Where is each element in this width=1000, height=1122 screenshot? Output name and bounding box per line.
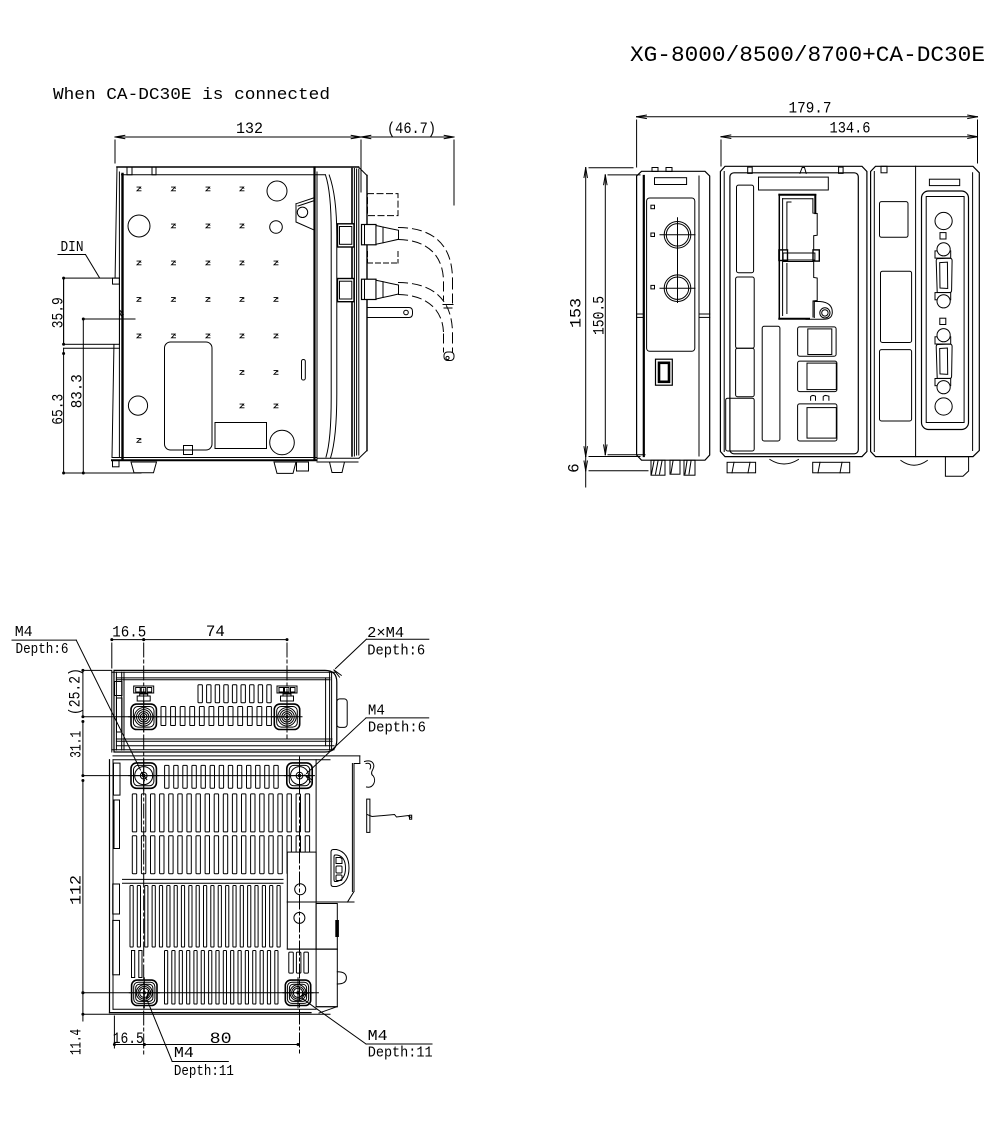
svg-text:74: 74 xyxy=(206,623,225,641)
svg-text:When CA-DC30E is connected: When CA-DC30E is connected xyxy=(53,86,330,105)
svg-text:16.5: 16.5 xyxy=(112,624,146,642)
svg-text:150.5: 150.5 xyxy=(591,296,609,335)
svg-text:179.7: 179.7 xyxy=(789,100,832,118)
svg-text:M4: M4 xyxy=(368,1028,388,1045)
svg-text:31.1: 31.1 xyxy=(68,731,86,758)
svg-text:132: 132 xyxy=(236,120,263,138)
svg-text:134.6: 134.6 xyxy=(830,120,871,138)
svg-text:M4: M4 xyxy=(174,1045,194,1062)
svg-text:35.9: 35.9 xyxy=(50,297,68,328)
svg-text:112: 112 xyxy=(68,875,86,905)
svg-text:Depth:11: Depth:11 xyxy=(368,1044,433,1061)
svg-text:6: 6 xyxy=(566,463,584,473)
svg-text:Depth:6: Depth:6 xyxy=(368,720,426,737)
svg-text:83.3: 83.3 xyxy=(69,374,87,408)
svg-text:16.5: 16.5 xyxy=(113,1030,144,1048)
svg-text:153: 153 xyxy=(568,298,586,328)
svg-text:DIN: DIN xyxy=(61,239,84,256)
svg-text:(46.7): (46.7) xyxy=(387,120,436,138)
svg-text:Depth:6: Depth:6 xyxy=(367,643,425,660)
svg-text:(25.2): (25.2) xyxy=(67,668,85,715)
svg-text:M4: M4 xyxy=(15,624,33,641)
svg-text:XG-8000/8500/8700+CA-DC30E: XG-8000/8500/8700+CA-DC30E xyxy=(630,43,985,68)
svg-text:Depth:6: Depth:6 xyxy=(16,641,69,658)
svg-text:65.3: 65.3 xyxy=(50,394,68,425)
svg-text:80: 80 xyxy=(210,1030,232,1048)
svg-text:Depth:11: Depth:11 xyxy=(174,1063,234,1080)
svg-text:11.4: 11.4 xyxy=(68,1029,86,1055)
svg-text:M4: M4 xyxy=(368,703,385,720)
